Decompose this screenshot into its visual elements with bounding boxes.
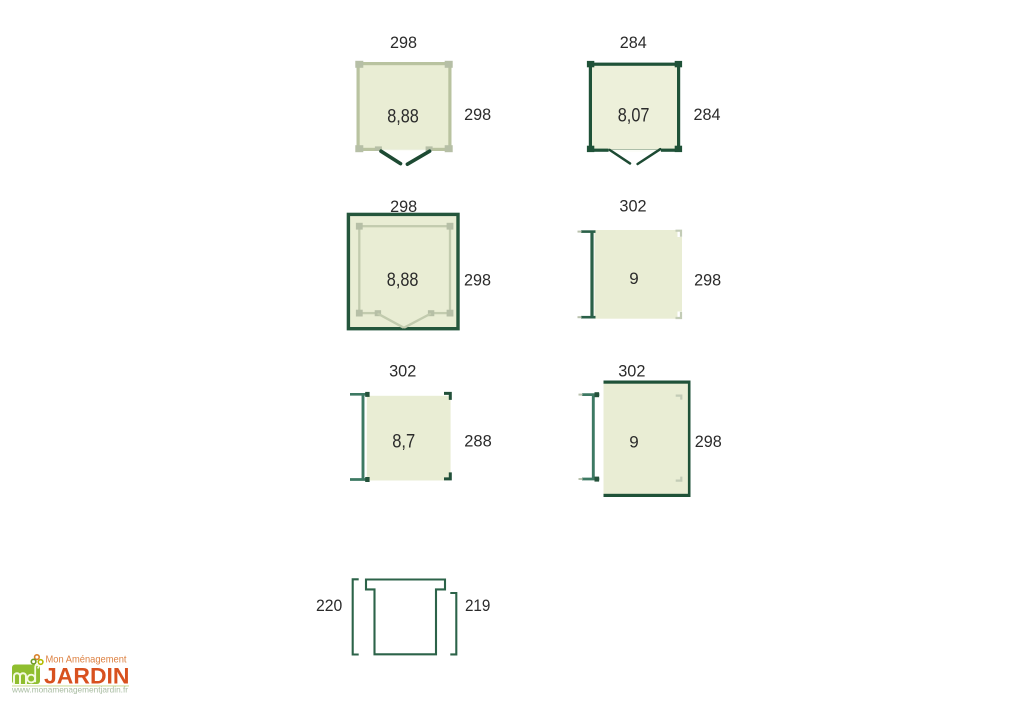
svg-text:284: 284 [694, 105, 721, 124]
svg-text:www.monamenagementjardin.fr: www.monamenagementjardin.fr [11, 685, 128, 695]
svg-text:298: 298 [694, 270, 721, 289]
svg-text:302: 302 [618, 362, 645, 381]
svg-text:220: 220 [316, 596, 342, 615]
svg-text:302: 302 [619, 197, 646, 216]
svg-text:8,7: 8,7 [392, 431, 415, 452]
svg-text:219: 219 [465, 596, 491, 615]
svg-text:8,88: 8,88 [387, 106, 419, 127]
svg-text:9: 9 [629, 433, 638, 452]
svg-text:8,07: 8,07 [618, 106, 650, 127]
svg-text:298: 298 [695, 432, 722, 451]
svg-text:298: 298 [464, 270, 491, 289]
svg-text:288: 288 [464, 432, 492, 451]
svg-text:302: 302 [389, 362, 416, 381]
svg-text:284: 284 [620, 33, 647, 52]
svg-text:298: 298 [390, 33, 417, 52]
svg-text:9: 9 [629, 269, 638, 288]
svg-text:8,88: 8,88 [387, 270, 419, 291]
svg-text:298: 298 [464, 105, 491, 124]
svg-text:298: 298 [390, 197, 417, 216]
